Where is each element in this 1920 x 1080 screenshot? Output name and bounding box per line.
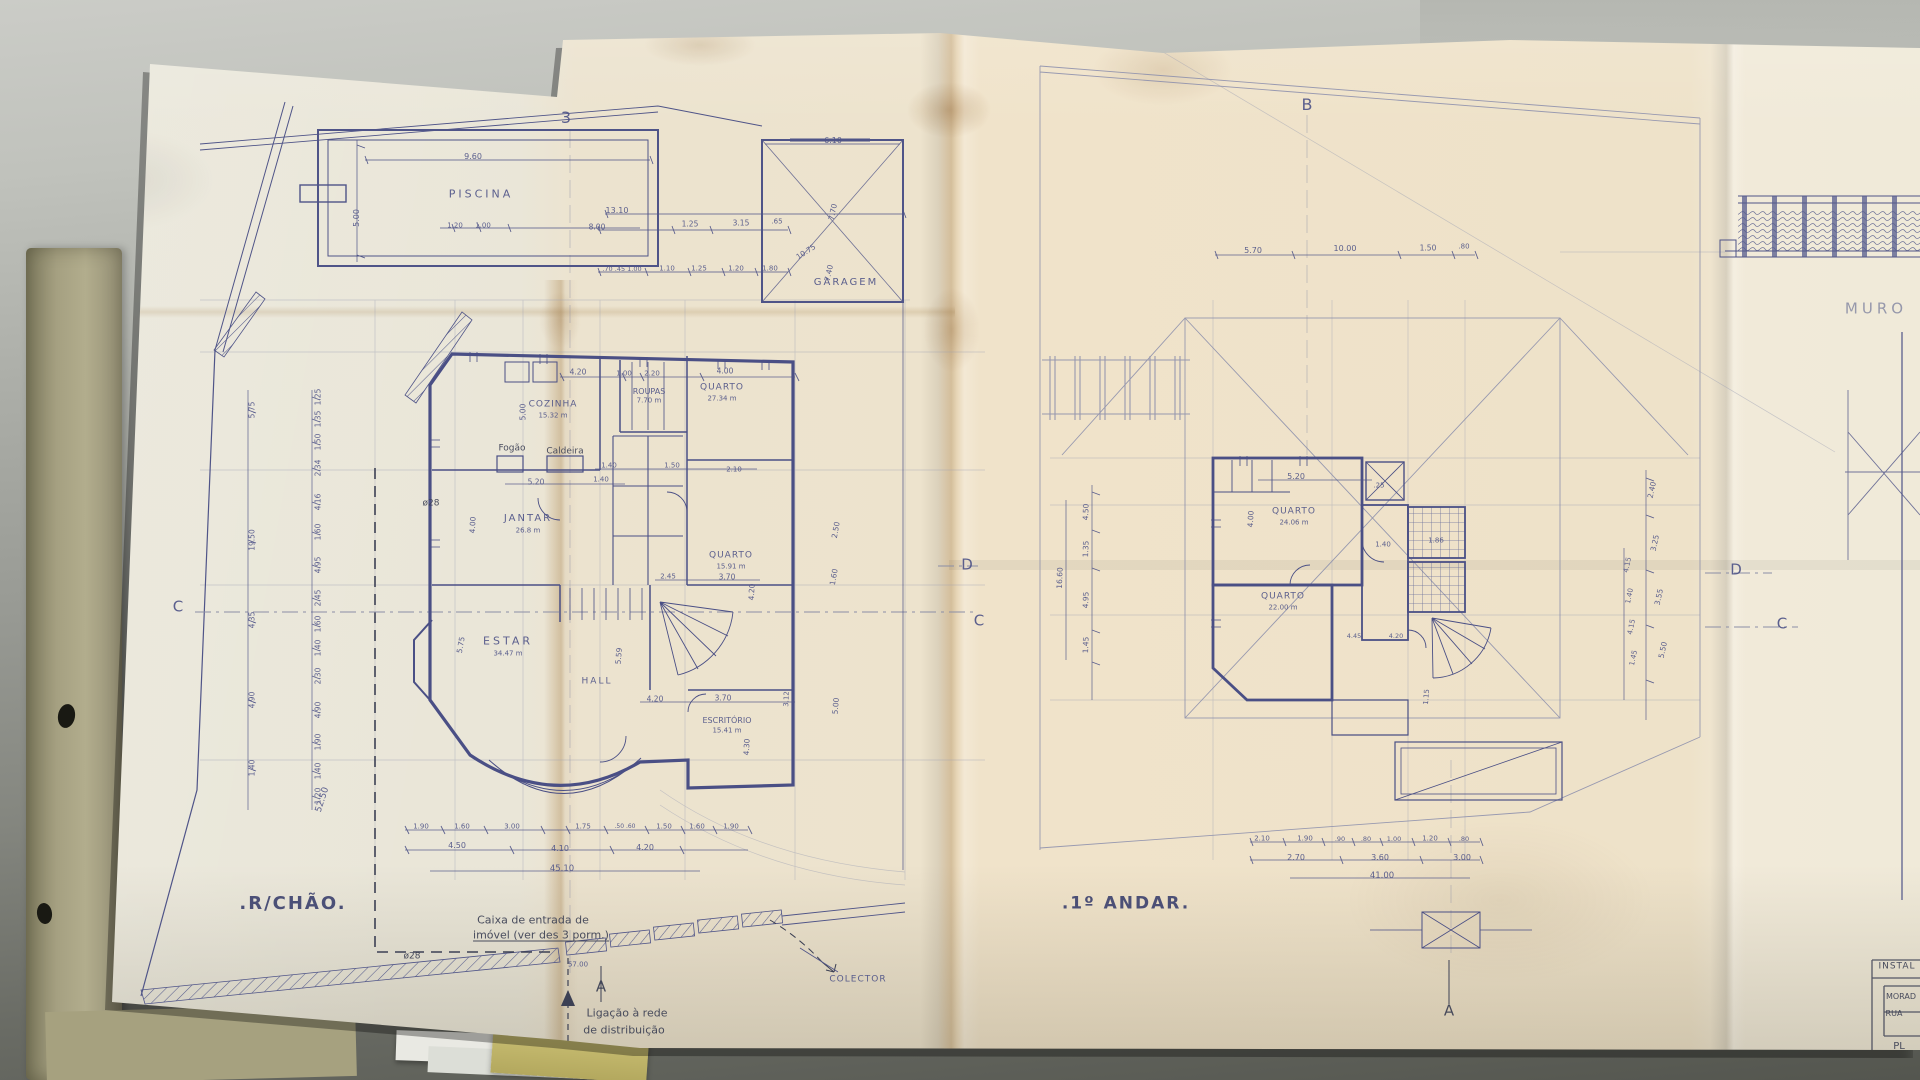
ground_dims-dim-label: 2.45 — [660, 574, 676, 581]
first_dims-dim-label: 3.00 — [1453, 854, 1471, 862]
room-escritorio-area: 15.41 m — [712, 728, 741, 735]
ground_dims-dim-label: 45.10 — [550, 865, 574, 874]
room-quarto-2-area: 15.91 m — [716, 564, 745, 571]
ground_dims-dim-label: 9.60 — [464, 153, 482, 161]
ground_dims-dim-label: 5.59 — [615, 647, 624, 664]
ground_dims-dim-label: 1.40 — [601, 463, 617, 470]
room-estar-area: 34.47 m — [493, 651, 522, 658]
room-quarto-4-area: 22.00 m — [1268, 605, 1297, 612]
section-marker-c-left: C — [173, 600, 183, 615]
ground_dims-dim-label: 1.50 — [664, 463, 680, 470]
first_dims-dim-label: 4.00 — [1247, 510, 1255, 527]
first_dims-dim-label: 5.20 — [1287, 473, 1305, 481]
ground_dims-dim-label: 4.20 — [748, 583, 756, 600]
ground_dims-dim-label: 1.40 — [314, 763, 322, 780]
diameter-28-lower: ø28 — [404, 953, 421, 962]
room-quarto-2: QUARTO — [709, 552, 753, 561]
section-marker-d-right: D — [1730, 563, 1742, 578]
titleblock-line1: MORAD — [1886, 993, 1916, 1001]
first_dims-dim-label: 1.90 — [1297, 836, 1313, 843]
ground_dims-dim-label: 2.30 — [314, 668, 322, 685]
ground_dims-dim-label: 1.80 — [762, 266, 778, 273]
room-cozinha: COZINHA — [529, 401, 578, 410]
ground_dims-dim-label: 1.40 — [248, 760, 256, 777]
section-marker-a-left: A — [596, 980, 606, 995]
first_dims-dim-label: 1.15 — [1423, 689, 1431, 705]
ground_dims-dim-label: 1.90 — [723, 824, 739, 831]
ground_dims-dim-label: 1.60 — [314, 524, 322, 541]
ground_dims-dim-label: 5.75 — [456, 636, 466, 654]
room-escritorio: ESCRITÓRIO — [702, 717, 751, 725]
first_dims-dim-label: 4.95 — [1082, 592, 1090, 609]
room-quarto-1: QUARTO — [700, 384, 744, 393]
ground_dims-dim-label: 7.70 — [828, 203, 839, 221]
ground_dims-dim-label: 1.25 — [691, 266, 707, 273]
fogao-label: Fogão — [498, 445, 525, 454]
ligacao-note-line1: Ligação à rede — [587, 1008, 668, 1019]
ground_dims-dim-label: .70 .45 1.00 — [602, 266, 641, 273]
ground_dims-dim-label: 4.00 — [717, 367, 734, 375]
room-piscina: PISCINA — [449, 189, 514, 200]
ground_dims-dim-label: 3.15 — [733, 219, 750, 227]
ground_dims-dim-label: 2.45 — [314, 590, 322, 607]
room-quarto-3: QUARTO — [1272, 508, 1316, 517]
ligacao-note-line2: de distribuição — [583, 1025, 664, 1036]
ground_dims-dim-label: 1.60 — [689, 824, 705, 831]
ground_dims-dim-label: 4.16 — [314, 494, 322, 511]
ground_dims-dim-label: 1.35 — [314, 411, 322, 428]
ground_dims-dim-label: 4.35 — [248, 612, 256, 629]
ground_dims-dim-label: 4.90 — [314, 702, 322, 719]
ground_dims-dim-label: 4.90 — [248, 692, 256, 709]
ground_dims-dim-label: 19.50 — [248, 529, 256, 550]
first_dims-dim-label: 4.15 — [1627, 619, 1637, 636]
section-marker-3: 3 — [561, 110, 571, 126]
ground_dims-dim-label: 2.34 — [314, 460, 322, 477]
ground_dims-dim-label: 1.40 — [593, 477, 609, 484]
first_dims-dim-label: 1.00 — [1387, 836, 1401, 843]
caixa-note-line2: imóvel (ver des 3 porm.) — [473, 930, 609, 941]
first_dims-dim-label: .80 — [1361, 836, 1371, 843]
ground_dims-dim-label: 1.00 — [616, 371, 632, 378]
ground_dims-dim-label: 5.00 — [519, 404, 527, 421]
ground_dims-dim-label: 13.10 — [606, 207, 629, 215]
first_dims-dim-label: 1.45 — [1629, 650, 1639, 667]
first_dims-dim-label: 2.10 — [1254, 836, 1270, 843]
first_dims-dim-label: 4.15 — [1623, 557, 1633, 574]
ground_dims-dim-label: 1.90 — [413, 824, 429, 831]
first_dims-dim-label: 5.50 — [1658, 641, 1669, 659]
first_dims-dim-label: .25 — [1373, 483, 1384, 490]
ground_dims-dim-label: 1.60 — [454, 824, 470, 831]
section-marker-c-right: C — [1777, 617, 1787, 632]
first_dims-dim-label: 10.00 — [1334, 245, 1357, 253]
section-marker-c-mid: C — [974, 614, 984, 629]
plan-title-ground: .R/CHÃO. — [239, 895, 346, 913]
room-estar: ESTAR — [483, 636, 533, 647]
ground_dims-dim-label: 6.10 — [824, 137, 842, 145]
ground_dims-dim-label: 8.00 — [589, 223, 606, 231]
caldeira-label: Caldeira — [546, 448, 583, 457]
room-quarto-1-area: 27.34 m — [707, 396, 736, 403]
ground_dims-dim-label: 4.10 — [551, 845, 569, 853]
ground_dims-dim-label: 1.20 — [447, 223, 463, 230]
ground_dims-dim-label: 2.50 — [831, 521, 841, 539]
ground_dims-dim-label: 5.00 — [353, 209, 361, 227]
ground_dims-dim-label: 5.75 — [248, 402, 256, 419]
first_dims-dim-label: 1.20 — [1422, 836, 1438, 843]
blueprint-paper: 3BCDCDCAAMURO.R/CHÃO.PISCINAGARAGEMCOZIN… — [0, 0, 1920, 1080]
first_dims-dim-label: 3.55 — [1654, 588, 1665, 606]
titleblock-line2: RUA — [1886, 1010, 1903, 1018]
first_dims-dim-label: 16.60 — [1056, 567, 1064, 589]
first_dims-dim-label: .80 — [1459, 836, 1469, 843]
ground_dims-dim-label: 1.25 — [682, 220, 699, 228]
ground_dims-dim-label: 1.50 — [656, 824, 672, 831]
titleblock-header: INSTAL — [1878, 963, 1915, 972]
ground_dims-dim-label: .65 — [771, 219, 782, 226]
first_dims-dim-label: 4.45 — [1347, 633, 1361, 640]
first_dims-dim-label: 1.45 — [1082, 637, 1090, 654]
first_dims-dim-label: 4.20 — [1389, 633, 1403, 640]
ground_dims-dim-label: 10.75 — [795, 243, 817, 261]
ground_dims-dim-label: 1.90 — [314, 734, 322, 751]
first_dims-dim-label: 1.40 — [1375, 542, 1391, 549]
first_dims-dim-label: .80 — [1458, 244, 1469, 251]
plan-title-first: .1º ANDAR. — [1062, 896, 1190, 913]
ground_dims-dim-label: 4.50 — [448, 842, 466, 850]
photo-of-blueprint: 3BCDCDCAAMURO.R/CHÃO.PISCINAGARAGEMCOZIN… — [0, 0, 1920, 1080]
section-marker-a-right: A — [1444, 1004, 1454, 1019]
muro-label: MURO — [1845, 302, 1907, 317]
ground_dims-dim-label: 1.50 — [314, 434, 322, 451]
first_dims-dim-label: 1.50 — [1420, 244, 1437, 252]
ground_dims-dim-label: 5.20 — [528, 478, 545, 486]
room-jantar: JANTAR — [504, 514, 552, 524]
ground_dims-dim-label: 1.60 — [829, 568, 839, 586]
ground_dims-dim-label: 4.20 — [647, 695, 664, 703]
ground_dims-dim-label: 3.12 — [783, 691, 791, 707]
ground_dims-dim-label: 2.20 — [644, 371, 660, 378]
room-roupas-area: 7.70 m — [637, 398, 662, 405]
handwritten-labels-layer: 3BCDCDCAAMURO.R/CHÃO.PISCINAGARAGEMCOZIN… — [0, 0, 1920, 1080]
first_dims-dim-label: 3.25 — [1650, 534, 1661, 552]
room-jantar-area: 26.8 m — [516, 528, 541, 535]
ground_dims-dim-label: 2.10 — [726, 467, 742, 474]
ground_dims-dim-label: 4.00 — [469, 516, 477, 533]
room-quarto-3-area: 24.06 m — [1279, 520, 1308, 527]
first_dims-dim-label: .90 — [1335, 836, 1345, 843]
ground_dims-dim-label: 4.30 — [743, 738, 751, 755]
ground_dims-dim-label: 4.20 — [570, 368, 587, 376]
diameter-28-upper: ø28 — [423, 500, 440, 509]
room-roupas: ROUPAS — [633, 388, 666, 396]
ground_dims-dim-label: 1.40 — [314, 640, 322, 657]
colector-label: COLECTOR — [829, 976, 886, 985]
first_dims-dim-label: 5.70 — [1244, 247, 1262, 255]
section-marker-d-mid: D — [961, 558, 973, 573]
section-marker-b: B — [1302, 97, 1313, 113]
first_dims-dim-label: 1.40 — [1625, 588, 1635, 605]
first_dims-dim-label: 4.50 — [1082, 504, 1090, 521]
ground_dims-dim-label: 1.10 — [659, 266, 675, 273]
caixa-note-line1: Caixa de entrada de — [477, 915, 589, 926]
room-hall: HALL — [582, 678, 613, 687]
ground_dims-dim-label: 5.00 — [832, 697, 841, 714]
ground_dims-dim-label: 1.60 — [314, 616, 322, 633]
first_dims-dim-label: 1.35 — [1082, 541, 1090, 558]
first_dims-dim-label: 2.40 — [1647, 481, 1658, 499]
first_dims-dim-label: 3.60 — [1371, 854, 1389, 862]
ground_dims-dim-label: 3.00 — [504, 824, 520, 831]
ground_dims-dim-label: 3.70 — [715, 694, 732, 702]
ground_dims-dim-label: 1.75 — [575, 824, 591, 831]
ground_dims-dim-label: 1.25 — [314, 389, 322, 406]
ground_dims-dim-label: 4.95 — [314, 557, 322, 574]
first_dims-dim-label: 41.00 — [1370, 872, 1394, 881]
ground_dims-dim-label: 3.70 — [719, 573, 736, 581]
room-cozinha-area: 15.32 m — [538, 413, 567, 420]
ground_dims-dim-label: .50 .60 — [615, 824, 636, 830]
ground_dims-dim-label: 1.20 — [728, 266, 744, 273]
room-quarto-4: QUARTO — [1261, 593, 1305, 602]
first_dims-dim-label: 2.70 — [1287, 854, 1305, 862]
ground_dims-dim-label: 4.20 — [636, 844, 654, 852]
first_dims-dim-label: 1.86 — [1428, 538, 1444, 545]
dim-57-00: 57.00 — [568, 962, 588, 969]
ground_dims-dim-label: 1.00 — [475, 223, 491, 230]
